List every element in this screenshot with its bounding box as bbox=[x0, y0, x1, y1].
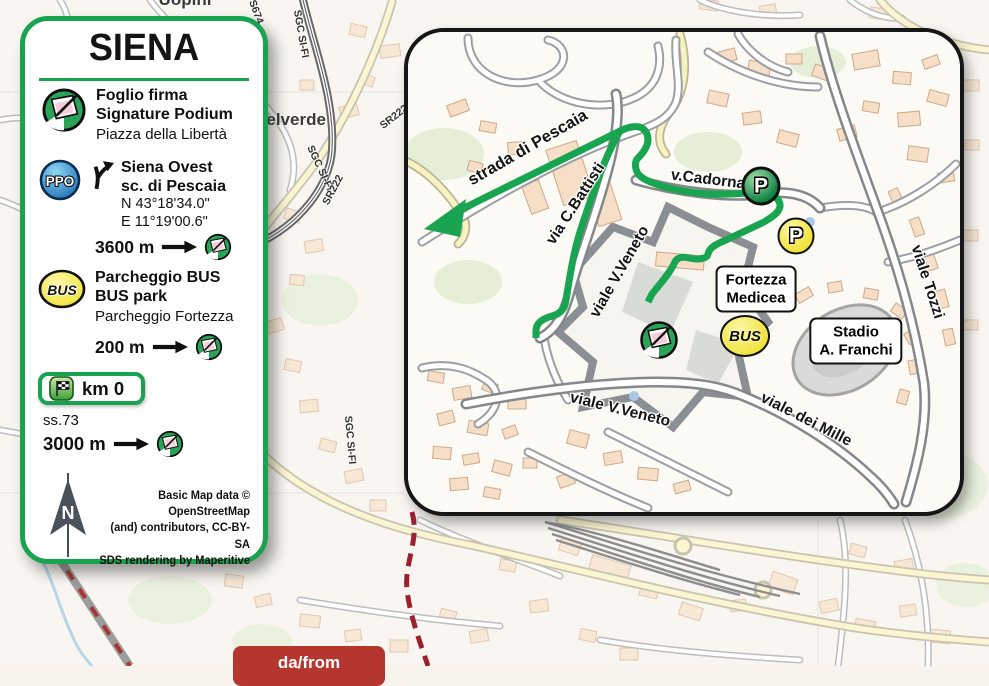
parking-letter: P bbox=[754, 174, 768, 198]
bus-title-en: BUS park bbox=[95, 288, 233, 307]
signature-podium-icon-small bbox=[195, 333, 223, 361]
ppo-longitude: E 11°19'00.6" bbox=[121, 214, 226, 232]
inset-map: strada di Pescaia via C.Battisti viale V… bbox=[404, 28, 964, 516]
fortezza-line1: Fortezza bbox=[726, 272, 787, 290]
ppo-distance: 3600 m bbox=[95, 237, 154, 258]
attribution-line3: SDS rendering by Maperitive bbox=[95, 552, 250, 568]
attribution-line1: Basic Map data © OpenStreetMap bbox=[95, 487, 250, 519]
stadio-franchi-label: Stadio A. Franchi bbox=[809, 318, 902, 365]
bus-location: Parcheggio Fortezza bbox=[95, 308, 233, 326]
legend-panel: SIENA Foglio firma Signature Podium Piaz… bbox=[20, 16, 268, 564]
fortezza-line2: Medicea bbox=[726, 289, 787, 307]
north-letter: N bbox=[62, 503, 75, 523]
junction-icon bbox=[90, 159, 114, 191]
legend-divider bbox=[39, 78, 249, 81]
bus-park-marker: BUS bbox=[720, 315, 770, 357]
ss73-road-label: ss.73 bbox=[43, 412, 79, 429]
signature-podium-icon bbox=[41, 87, 87, 133]
bus-letters: BUS bbox=[47, 282, 77, 298]
map-attribution: Basic Map data © OpenStreetMap (and) con… bbox=[95, 487, 250, 568]
km0-label: km 0 bbox=[82, 378, 124, 400]
inset-map-graphics bbox=[408, 32, 960, 512]
bus-title-it: Parcheggio BUS bbox=[95, 269, 233, 288]
ss73-distance-row: 3000 m bbox=[43, 430, 184, 458]
arrow-right-icon bbox=[113, 437, 149, 451]
ppo-letters: PPO bbox=[46, 174, 75, 189]
legend-item-ppo: PPO Siena Ovest sc. di Pescaia N 43°18'3… bbox=[39, 159, 226, 231]
ss73-distance: 3000 m bbox=[43, 433, 106, 455]
signature-title-it: Foglio firma bbox=[96, 87, 233, 106]
arrow-right-icon bbox=[161, 240, 197, 254]
legend-item-signature-podium: Foglio firma Signature Podium Piazza del… bbox=[41, 87, 233, 144]
ppo-distance-row: 3600 m bbox=[95, 233, 232, 261]
legend-item-bus: BUS Parcheggio BUS BUS park Parcheggio F… bbox=[38, 269, 233, 326]
da-from-badge: da/from bbox=[233, 646, 385, 686]
place-label-uopini: Uopini bbox=[159, 0, 212, 10]
ppo-latitude: N 43°18'34.0" bbox=[121, 196, 226, 214]
signature-title-en: Signature Podium bbox=[96, 106, 233, 125]
signature-podium-icon-small bbox=[156, 430, 184, 458]
route-map-page: { "legend": { "title": "SIENA", "signatu… bbox=[0, 0, 989, 666]
stadio-line2: A. Franchi bbox=[819, 341, 892, 359]
bus-distance-row: 200 m bbox=[95, 333, 223, 361]
ppo-title-2: sc. di Pescaia bbox=[121, 178, 226, 197]
stadio-line1: Stadio bbox=[819, 324, 892, 342]
parking-marker-green: P bbox=[742, 167, 781, 206]
legend-title: SIENA bbox=[31, 27, 257, 70]
km0-flag-icon bbox=[49, 376, 74, 401]
signature-podium-icon-small bbox=[204, 233, 232, 261]
fortezza-medicea-label: Fortezza Medicea bbox=[716, 266, 797, 313]
ppo-title-1: Siena Ovest bbox=[121, 159, 226, 178]
bus-park-icon: BUS bbox=[38, 269, 86, 309]
ppo-icon: PPO bbox=[39, 159, 81, 201]
north-compass-icon: N bbox=[41, 471, 95, 559]
arrow-right-icon bbox=[152, 340, 188, 354]
attribution-line2: (and) contributors, CC-BY-SA bbox=[95, 519, 250, 551]
signature-podium-marker bbox=[639, 320, 679, 360]
bus-letters: BUS bbox=[729, 328, 761, 345]
bus-distance: 200 m bbox=[95, 337, 145, 358]
signature-location: Piazza della Libertà bbox=[96, 126, 233, 144]
parking-marker-yellow: P bbox=[778, 218, 815, 255]
parking-letter: P bbox=[789, 224, 803, 248]
km0-badge: km 0 bbox=[38, 372, 145, 405]
